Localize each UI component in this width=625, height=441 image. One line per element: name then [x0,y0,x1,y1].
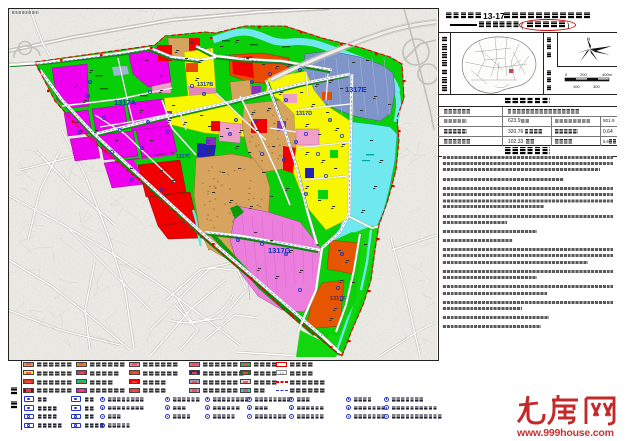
svg-text:N: N [587,37,590,42]
svg-text:400m: 400m [602,72,613,77]
svg-text:100: 100 [573,84,580,89]
svg-text:1317B: 1317B [197,82,213,88]
svg-text:1317E: 1317E [345,85,367,94]
svg-text:300: 300 [593,84,600,89]
svg-text:www.999house.com: www.999house.com [516,427,614,439]
svg-text:1317C: 1317C [176,154,191,160]
svg-text:200: 200 [580,72,587,77]
svg-text:1317F: 1317F [330,296,346,302]
svg-text:0: 0 [565,72,568,77]
svg-text:1317D: 1317D [296,111,312,117]
svg-text:1317A: 1317A [114,98,137,107]
